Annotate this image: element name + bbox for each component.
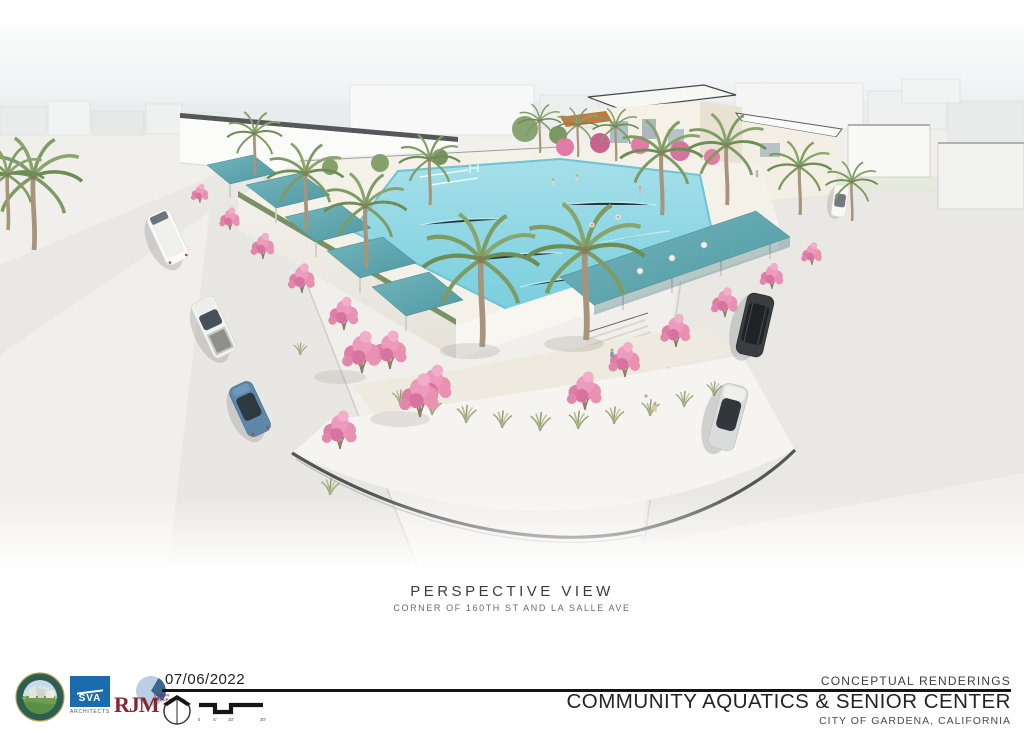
view-subtitle: CORNER OF 160TH ST AND LA SALLE AVE	[0, 603, 1024, 613]
sva-architects-logo: SVA ARCHITECTS	[70, 676, 110, 715]
series-label: CONCEPTUAL RENDERINGS	[566, 674, 1011, 688]
sva-architects-text: ARCHITECTS	[70, 709, 110, 715]
sva-logo-square: SVA	[70, 676, 110, 707]
north-arrow-and-scale: 0 5' 10' 20'	[161, 693, 281, 729]
render-fade	[0, 495, 1024, 570]
rjm-logo-text: RJM	[114, 694, 159, 716]
scale-label-10: 10'	[228, 717, 234, 722]
project-title: COMMUNITY AQUATICS & SENIOR CENTER	[566, 692, 1011, 713]
date: 07/06/2022	[165, 671, 245, 688]
scale-label-20: 20'	[260, 717, 266, 722]
scale-bar: 0 5' 10' 20'	[198, 705, 266, 722]
project-location: CITY OF GARDENA, CALIFORNIA	[566, 715, 1011, 727]
city-of-gardena-seal: CITY OF GARDENA	[15, 672, 65, 722]
presentation-board: PERSPECTIVE VIEW CORNER OF 160TH ST AND …	[0, 0, 1024, 731]
scale-label-5: 5'	[213, 717, 217, 722]
rjm-design-group-logo: RJM DESIGN GROUP	[114, 676, 166, 722]
sva-logo-text: SVA	[79, 694, 102, 704]
view-title: PERSPECTIVE VIEW	[0, 583, 1024, 600]
perspective-rendering	[0, 25, 1024, 570]
caption: PERSPECTIVE VIEW CORNER OF 160TH ST AND …	[0, 583, 1024, 613]
project-title-block: CONCEPTUAL RENDERINGS COMMUNITY AQUATICS…	[566, 674, 1011, 727]
north-arrow-icon	[163, 695, 191, 724]
scale-label-0: 0	[198, 717, 201, 722]
